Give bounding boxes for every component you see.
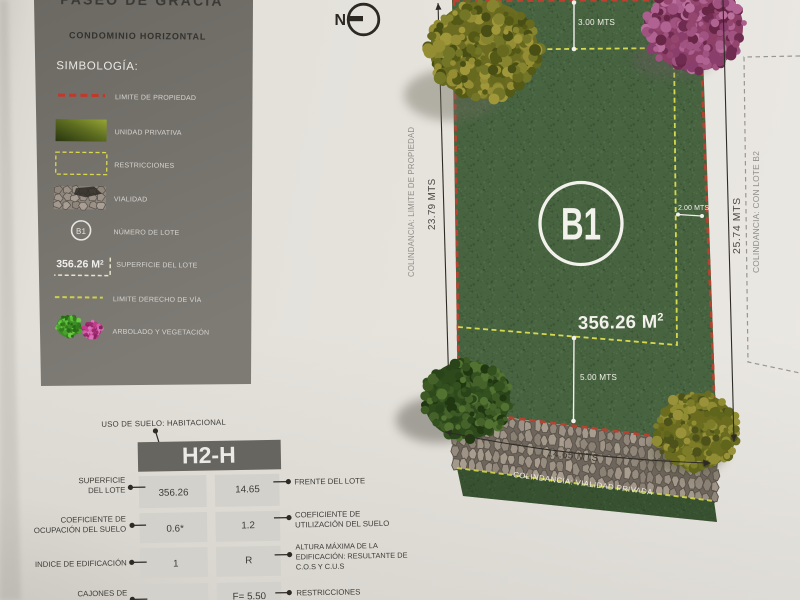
svg-text:0.6*: 0.6* [166,523,184,534]
svg-text:C.O.S Y C.U.S: C.O.S Y C.U.S [296,562,345,572]
svg-text:1: 1 [173,559,179,570]
svg-text:5.00 MTS: 5.00 MTS [580,373,617,382]
svg-text:COEFICIENTE DE: COEFICIENTE DE [60,514,126,524]
svg-text:F= 5.50: F= 5.50 [233,591,267,600]
svg-text:FRENTE DEL LOTE: FRENTE DEL LOTE [294,476,365,486]
svg-text:RESTRICCIONES: RESTRICCIONES [114,162,174,170]
svg-text:1.2: 1.2 [241,520,255,531]
svg-text:356.26 M2: 356.26 M2 [56,258,104,270]
svg-text:14.65: 14.65 [235,484,260,495]
svg-text:RESTRICCIONES: RESTRICCIONES [296,587,360,597]
svg-text:B1: B1 [76,227,87,236]
svg-text:INDICE DE EDIFICACIÓN: INDICE DE EDIFICACIÓN [35,558,127,569]
svg-text:N: N [335,12,347,29]
svg-text:UTILIZACIÓN DEL SUELO: UTILIZACIÓN DEL SUELO [295,519,389,530]
svg-text:ALTURA MÁXIMA DE LA: ALTURA MÁXIMA DE LA [295,541,378,551]
svg-text:VIALIDAD: VIALIDAD [114,196,148,203]
svg-text:356.26: 356.26 [158,487,189,499]
svg-text:UNIDAD PRIVATIVA: UNIDAD PRIVATIVA [115,129,182,137]
svg-text:2.00 MTS: 2.00 MTS [678,205,709,212]
svg-text:SIMBOLOGÍA:: SIMBOLOGÍA: [56,59,138,73]
svg-text:R: R [245,555,252,566]
svg-text:COLINDANCIA: LIMITE DE PROPIE: COLINDANCIA: LIMITE DE PROPIEDAD [407,127,416,277]
svg-text:LIMITE DE PROPIEDAD: LIMITE DE PROPIEDAD [115,94,196,102]
svg-text:DEL LOTE: DEL LOTE [88,485,126,495]
svg-text:356.26 M2: 356.26 M2 [578,311,664,333]
svg-text:25.74 MTS: 25.74 MTS [731,197,743,254]
svg-text:USO DE SUELO: HABITACIONAL: USO DE SUELO: HABITACIONAL [101,418,226,429]
svg-text:OCUPACIÓN DEL SUELO: OCUPACIÓN DEL SUELO [34,524,126,535]
svg-text:SUPERFICIE: SUPERFICIE [78,475,125,485]
svg-text:COLINDANCIA: CON LOTE B2: COLINDANCIA: CON LOTE B2 [751,151,761,273]
svg-text:3.00 MTS: 3.00 MTS [578,18,615,27]
svg-text:CONDOMINIO HORIZONTAL: CONDOMINIO HORIZONTAL [69,30,206,41]
svg-text:COEFICIENTE DE: COEFICIENTE DE [295,509,361,519]
svg-text:H2-H: H2-H [182,442,236,469]
svg-text:CAJONES DE: CAJONES DE [77,588,127,598]
svg-text:23.79 MTS: 23.79 MTS [427,178,438,230]
svg-text:B1: B1 [561,199,601,250]
svg-text:EDIFICACIÓN: RESULTANTE DE: EDIFICACIÓN: RESULTANTE DE [296,551,408,562]
svg-text:SUPERFICIE DEL LOTE: SUPERFICIE DEL LOTE [116,262,198,270]
